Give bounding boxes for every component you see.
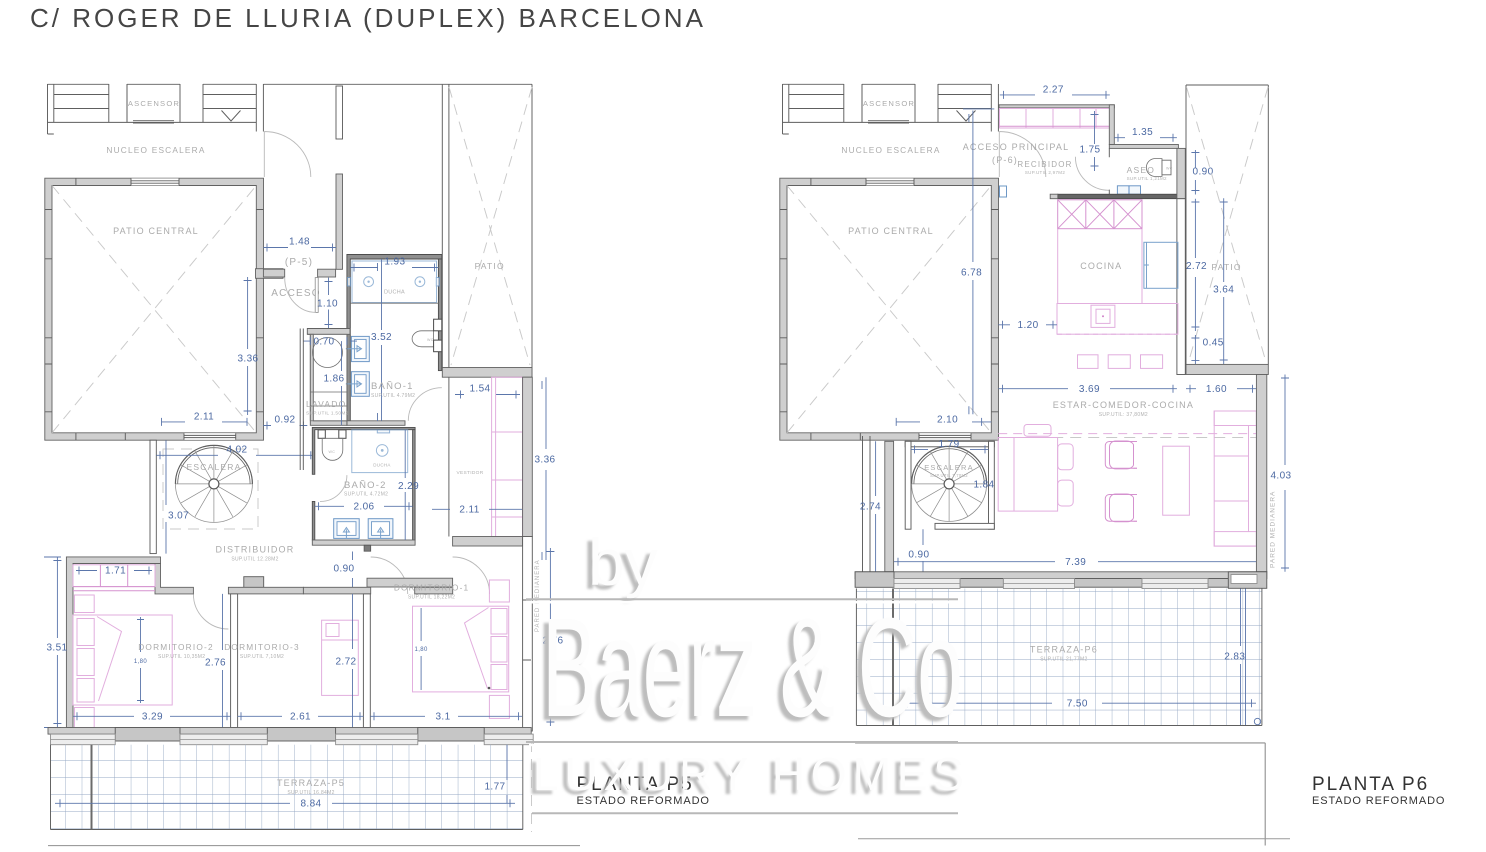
svg-text:ESTAR-COMEDOR-COCINA: ESTAR-COMEDOR-COCINA <box>1053 400 1194 410</box>
svg-text:1.10: 1.10 <box>317 299 338 310</box>
svg-text:1.71: 1.71 <box>105 566 126 577</box>
svg-text:3.07: 3.07 <box>168 511 189 522</box>
svg-text:DISTRIBUIDOR: DISTRIBUIDOR <box>216 545 295 555</box>
svg-text:2.27: 2.27 <box>1043 84 1064 95</box>
svg-text:1.84: 1.84 <box>973 479 994 490</box>
svg-text:2.06: 2.06 <box>353 502 374 513</box>
svg-text:ASCENSOR: ASCENSOR <box>863 99 915 108</box>
svg-text:1.79: 1.79 <box>939 439 960 450</box>
svg-text:2.76: 2.76 <box>205 658 226 669</box>
svg-text:8.84: 8.84 <box>300 799 321 810</box>
svg-text:DUCHA: DUCHA <box>373 463 391 468</box>
svg-text:WC: WC <box>329 450 336 454</box>
svg-text:3.52: 3.52 <box>371 332 392 343</box>
svg-text:0.90: 0.90 <box>908 549 929 560</box>
svg-text:1.93: 1.93 <box>384 257 405 268</box>
svg-text:DORMITORIO-3: DORMITORIO-3 <box>224 642 300 652</box>
svg-text:1,80: 1,80 <box>134 659 148 665</box>
svg-text:2.61: 2.61 <box>290 711 311 722</box>
svg-text:ASEO: ASEO <box>1127 165 1155 175</box>
svg-text:2.72: 2.72 <box>335 657 356 668</box>
svg-text:1.20: 1.20 <box>1018 320 1039 331</box>
svg-text:BAÑO-1: BAÑO-1 <box>371 381 414 392</box>
svg-text:(P-5): (P-5) <box>285 257 313 268</box>
svg-text:SUP.UTIL 7,10M2: SUP.UTIL 7,10M2 <box>240 654 284 660</box>
svg-text:NUCLEO ESCALERA: NUCLEO ESCALERA <box>841 145 940 155</box>
svg-text:RECIBIDOR: RECIBIDOR <box>1017 160 1072 169</box>
svg-text:1.77: 1.77 <box>484 782 505 793</box>
svg-text:7.39: 7.39 <box>1065 557 1086 568</box>
svg-text:2.74: 2.74 <box>860 501 881 512</box>
svg-text:4.02: 4.02 <box>226 445 247 456</box>
svg-text:ACCESO: ACCESO <box>271 288 320 299</box>
svg-text:NUCLEO ESCALERA: NUCLEO ESCALERA <box>106 145 205 155</box>
svg-text:SUP.UTIL 21,77M2: SUP.UTIL 21,77M2 <box>1040 657 1087 663</box>
svg-text:2.72: 2.72 <box>1186 261 1207 272</box>
svg-text:0.92: 0.92 <box>274 415 295 426</box>
svg-text:PATIO CENTRAL: PATIO CENTRAL <box>848 226 934 236</box>
svg-text:(P-6): (P-6) <box>992 155 1018 165</box>
svg-text:1.54: 1.54 <box>469 384 490 395</box>
svg-text:ESTADO REFORMADO: ESTADO REFORMADO <box>1312 795 1445 807</box>
svg-text:C/ ROGER DE LLURIA (DUPLEX) B: C/ ROGER DE LLURIA (DUPLEX) BARCELONA <box>30 3 706 33</box>
svg-text:PLANTA P6: PLANTA P6 <box>1312 774 1429 795</box>
svg-text:0.90: 0.90 <box>333 564 354 575</box>
svg-text:WC: WC <box>427 338 434 342</box>
svg-text:PARED MEDIANERA: PARED MEDIANERA <box>1270 491 1277 568</box>
svg-text:SUP.UTIL 7,70M2: SUP.UTIL 7,70M2 <box>930 473 968 478</box>
svg-text:SUP.UTIL 4.72M2: SUP.UTIL 4.72M2 <box>344 492 388 498</box>
svg-text:LAVADO: LAVADO <box>306 399 346 409</box>
svg-text:3.64: 3.64 <box>1213 285 1234 296</box>
svg-text:SUP.UTIL 1.50M2: SUP.UTIL 1.50M2 <box>306 411 349 417</box>
svg-text:VESTIDOR: VESTIDOR <box>457 470 484 476</box>
svg-text:3.29: 3.29 <box>142 711 163 722</box>
svg-text:3.1: 3.1 <box>435 711 450 722</box>
svg-text:3.36: 3.36 <box>237 354 258 365</box>
svg-text:DORMITORIO-2: DORMITORIO-2 <box>138 642 214 652</box>
svg-text:2.11: 2.11 <box>459 505 479 516</box>
svg-text:2.29: 2.29 <box>398 481 419 492</box>
svg-text:PATIO CENTRAL: PATIO CENTRAL <box>113 226 199 236</box>
svg-text:1.35: 1.35 <box>1132 127 1153 138</box>
svg-text:1,80: 1,80 <box>414 647 428 653</box>
svg-text:SUP.UTIL 4.79M2: SUP.UTIL 4.79M2 <box>371 393 415 399</box>
svg-text:ASCENSOR: ASCENSOR <box>128 99 180 108</box>
svg-text:TERRAZA-P5: TERRAZA-P5 <box>277 778 345 788</box>
svg-text:3.36: 3.36 <box>534 455 555 466</box>
svg-text:2.83: 2.83 <box>1224 652 1245 663</box>
svg-text:3.51: 3.51 <box>46 643 67 654</box>
svg-text:ESCALERA: ESCALERA <box>187 462 242 472</box>
svg-text:1.60: 1.60 <box>1206 384 1227 395</box>
svg-text:TERRAZA-P6: TERRAZA-P6 <box>1030 645 1098 655</box>
svg-text:ESCALERA: ESCALERA <box>924 463 974 472</box>
svg-text:SUP.UTIL: 37,80M2: SUP.UTIL: 37,80M2 <box>1099 412 1148 418</box>
svg-text:PATIO: PATIO <box>475 261 505 271</box>
svg-text:SUP.UTIL 2,97M2: SUP.UTIL 2,97M2 <box>1025 170 1065 175</box>
svg-text:0.70: 0.70 <box>313 337 334 348</box>
svg-text:ACCESO PRINCIPAL: ACCESO PRINCIPAL <box>963 142 1070 152</box>
svg-text:1.86: 1.86 <box>323 374 344 385</box>
svg-text:1.75: 1.75 <box>1079 144 1100 155</box>
svg-text:7.50: 7.50 <box>1067 699 1088 710</box>
svg-text:BAÑO-2: BAÑO-2 <box>344 480 387 491</box>
svg-text:0.90: 0.90 <box>1193 167 1214 178</box>
svg-text:PATIO: PATIO <box>1211 262 1241 272</box>
svg-text:3.69: 3.69 <box>1079 384 1100 395</box>
svg-text:DORMITORIO-1: DORMITORIO-1 <box>394 583 470 593</box>
svg-text:SUP.UTIL 12.28M2: SUP.UTIL 12.28M2 <box>231 557 278 563</box>
svg-text:6.78: 6.78 <box>961 268 982 279</box>
svg-text:SUP.UTIL 10,35M2: SUP.UTIL 10,35M2 <box>158 654 205 660</box>
svg-text:2.11: 2.11 <box>194 412 214 423</box>
svg-text:DUCHA: DUCHA <box>384 290 405 296</box>
svg-text:2.10: 2.10 <box>937 415 958 426</box>
svg-text:0.45: 0.45 <box>1203 338 1224 349</box>
svg-text:SUP.UTIL 18,22M2: SUP.UTIL 18,22M2 <box>408 595 455 601</box>
svg-text:SUP.UTIL 16,84M2: SUP.UTIL 16,84M2 <box>287 790 334 796</box>
svg-text:1.48: 1.48 <box>289 237 310 248</box>
svg-text:Baerz & Co: Baerz & Co <box>542 588 963 746</box>
svg-text:WC: WC <box>1166 167 1173 171</box>
svg-text:4.03: 4.03 <box>1270 471 1291 482</box>
svg-text:COCINA: COCINA <box>1080 261 1122 271</box>
